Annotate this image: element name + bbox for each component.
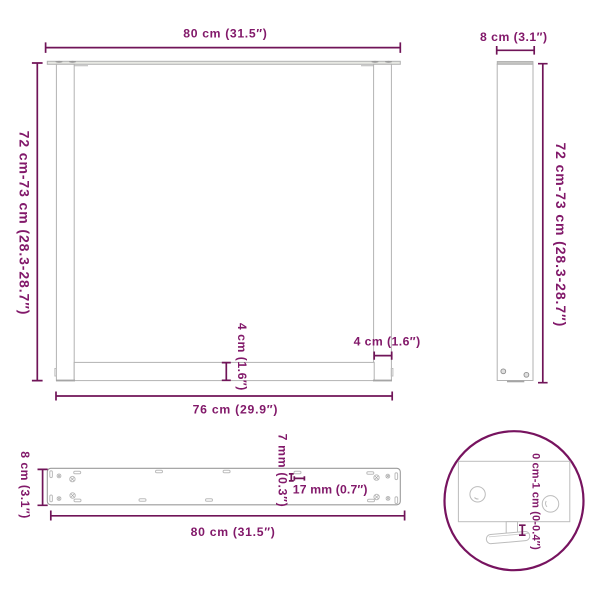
svg-text:4 cm (1.6″): 4 cm (1.6″) — [354, 335, 421, 349]
svg-text:80 cm (31.5″): 80 cm (31.5″) — [183, 27, 267, 41]
svg-text:80 cm (31.5″): 80 cm (31.5″) — [191, 525, 276, 539]
svg-text:0 cm-1 cm (0-0.4″): 0 cm-1 cm (0-0.4″) — [529, 453, 541, 550]
svg-text:76 cm (29.9″): 76 cm (29.9″) — [193, 402, 279, 416]
svg-text:7 mm (0.3″): 7 mm (0.3″) — [275, 434, 289, 508]
svg-text:72 cm-73 cm (28.3-28.7″): 72 cm-73 cm (28.3-28.7″) — [553, 142, 569, 327]
svg-text:8 cm (3.1″): 8 cm (3.1″) — [18, 451, 32, 519]
svg-text:72 cm-73 cm (28.3-28.7″): 72 cm-73 cm (28.3-28.7″) — [16, 131, 32, 316]
svg-text:17 mm (0.7″): 17 mm (0.7″) — [293, 483, 368, 497]
svg-text:8 cm (3.1″): 8 cm (3.1″) — [480, 30, 548, 44]
svg-text:4 cm (1.6″): 4 cm (1.6″) — [235, 323, 249, 391]
